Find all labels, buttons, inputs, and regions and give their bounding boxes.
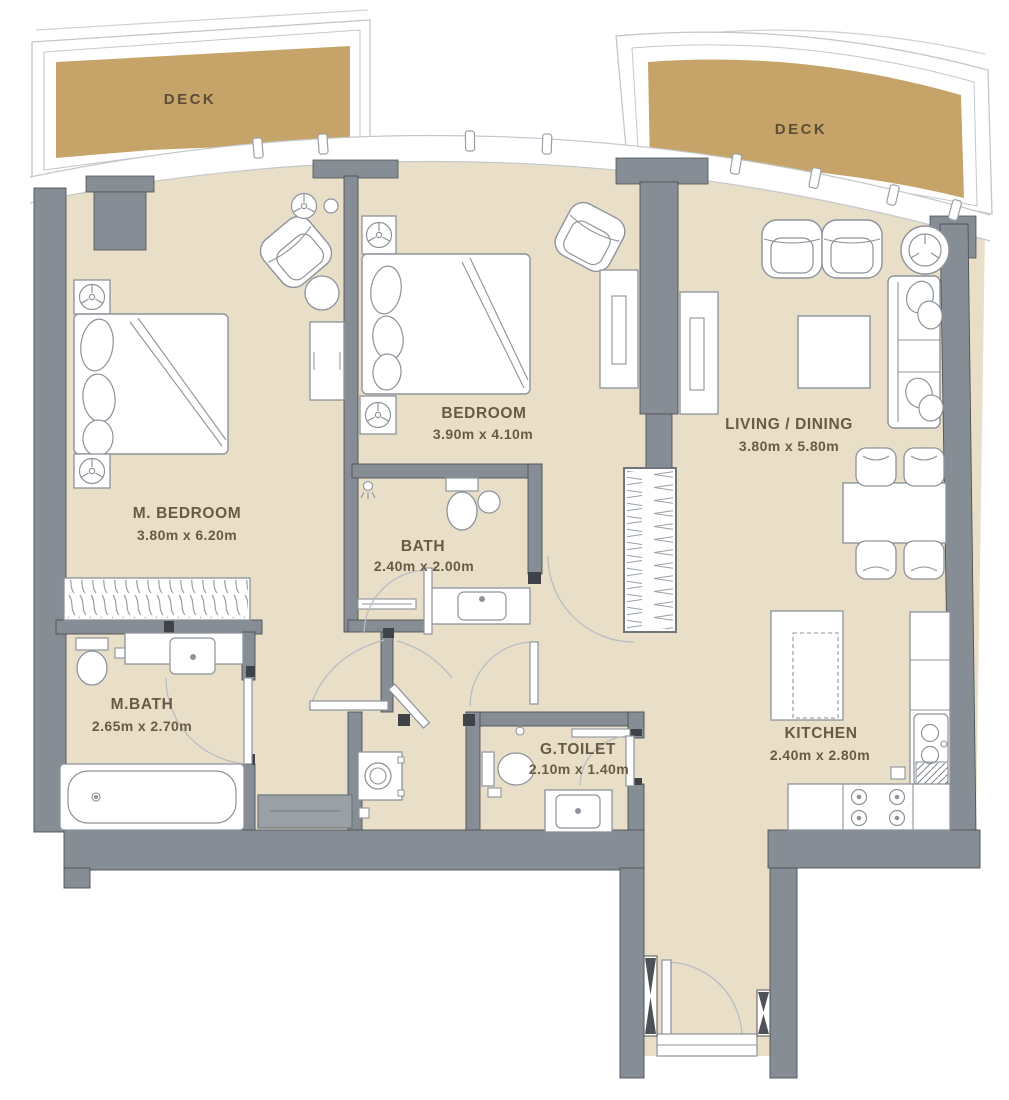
hand-basin [478,491,500,513]
dresser [310,322,344,400]
room-dims-bedroom: 3.90m x 4.10m [433,426,533,442]
room-label-kitchen: KITCHEN [784,725,857,742]
kitchen-island [771,611,843,720]
room-dims-kitchen: 2.40m x 2.80m [770,747,870,763]
room-label-living-dining: LIVING / DINING [725,416,853,433]
tv-icon [612,296,626,364]
wall-living-divider [640,182,678,414]
armchair-living [822,220,882,278]
room-label-g-toilet: G.TOILET [540,741,616,758]
toilet [77,651,107,685]
room-dims-bath: 2.40m x 2.00m [374,558,474,574]
room-dims-living-dining: 3.80m x 5.80m [739,438,839,454]
armchair-living [762,220,822,278]
dining-chair [904,541,944,579]
room-dims-m-bedroom: 3.80m x 6.20m [137,527,237,543]
kitchen-counter-bottom [788,784,950,830]
toilet [447,492,477,530]
floor-plan-canvas: DECK DECK M. BEDROOM 3.80m x 6.20m BEDRO… [0,0,1009,1100]
wall-bottom-right-slab [768,830,980,868]
deck-right-label: DECK [775,121,828,138]
toilet-tank [76,638,108,650]
room-label-m-bath: M.BATH [111,696,174,713]
dining-table [843,483,946,543]
dining-chair [904,448,944,486]
toilet-tank [446,478,478,491]
door-jamb-left [644,956,657,1036]
room-dims-m-bath: 2.65m x 2.70m [92,718,192,734]
towel-rail [572,729,630,737]
floor-plan: DECK DECK M. BEDROOM 3.80m x 6.20m BEDRO… [0,0,1009,1100]
wall-bottom-left-slab [64,830,644,870]
tv-icon [690,318,704,390]
linen-closet [624,468,676,632]
plant-table-icon [901,226,949,274]
room-dims-g-toilet: 2.10m x 1.40m [529,761,629,777]
room-label-bedroom: BEDROOM [441,405,526,422]
dining-chair [856,541,896,579]
wall-bedroom-divider [344,176,358,632]
bathtub [60,764,244,830]
deck-left-label: DECK [164,91,217,108]
room-label-bath: BATH [401,538,445,555]
wall-left-exterior [34,188,66,832]
room-label-m-bedroom: M. BEDROOM [133,505,241,522]
wall-corridor-left [620,868,644,1078]
side-table [324,199,338,213]
wardrobe-master [64,578,250,620]
toilet-tank [482,752,494,786]
door-jamb-right [757,990,770,1036]
ottoman [305,276,339,310]
dining-chair [856,448,896,486]
kitchen-switch [891,767,905,779]
wall-corridor-right [770,868,797,1078]
coffee-table [798,316,870,388]
